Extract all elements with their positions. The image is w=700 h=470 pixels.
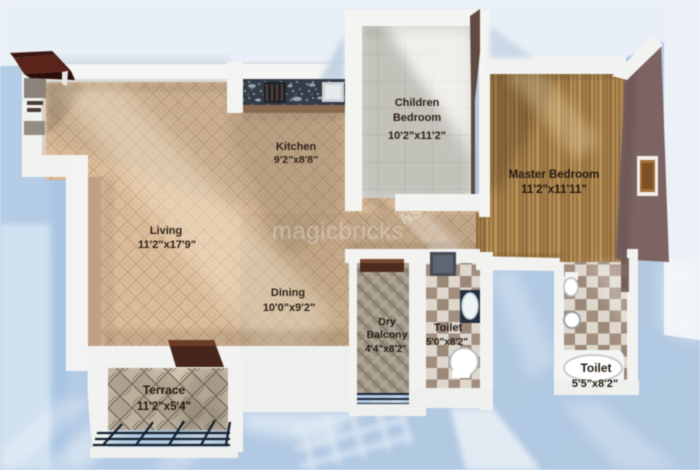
svg-text:Children: Children	[395, 97, 440, 109]
svg-text:Toilet: Toilet	[434, 322, 463, 334]
svg-text:Terrace: Terrace	[143, 383, 186, 397]
svg-text:Bedroom: Bedroom	[393, 112, 442, 124]
svg-text:Master Bedroom: Master Bedroom	[509, 169, 600, 181]
svg-text:Kitchen: Kitchen	[276, 141, 317, 153]
svg-text:Living: Living	[150, 225, 182, 237]
svg-text:5'0"x8'2": 5'0"x8'2"	[426, 337, 468, 348]
svg-text:11'2"x17'9": 11'2"x17'9"	[138, 239, 196, 251]
svg-text:10'2"x11'2": 10'2"x11'2"	[388, 130, 446, 142]
svg-text:11'2"x5'4": 11'2"x5'4"	[137, 401, 191, 413]
svg-text:Dining: Dining	[271, 287, 305, 299]
svg-text:4'4"x8'2": 4'4"x8'2"	[365, 344, 407, 355]
svg-text:Toilet: Toilet	[580, 361, 611, 375]
svg-text:9'2"x8'8": 9'2"x8'8"	[274, 154, 318, 166]
svg-text:5'5"x8'2": 5'5"x8'2"	[572, 378, 618, 390]
svg-text:Balcony: Balcony	[367, 329, 408, 341]
svg-text:magicbricks: magicbricks	[272, 218, 404, 245]
svg-text:Dry: Dry	[378, 316, 396, 328]
svg-text:11'2"x11'11": 11'2"x11'11"	[521, 184, 587, 196]
svg-text:10'0"x9'2": 10'0"x9'2"	[263, 302, 315, 314]
